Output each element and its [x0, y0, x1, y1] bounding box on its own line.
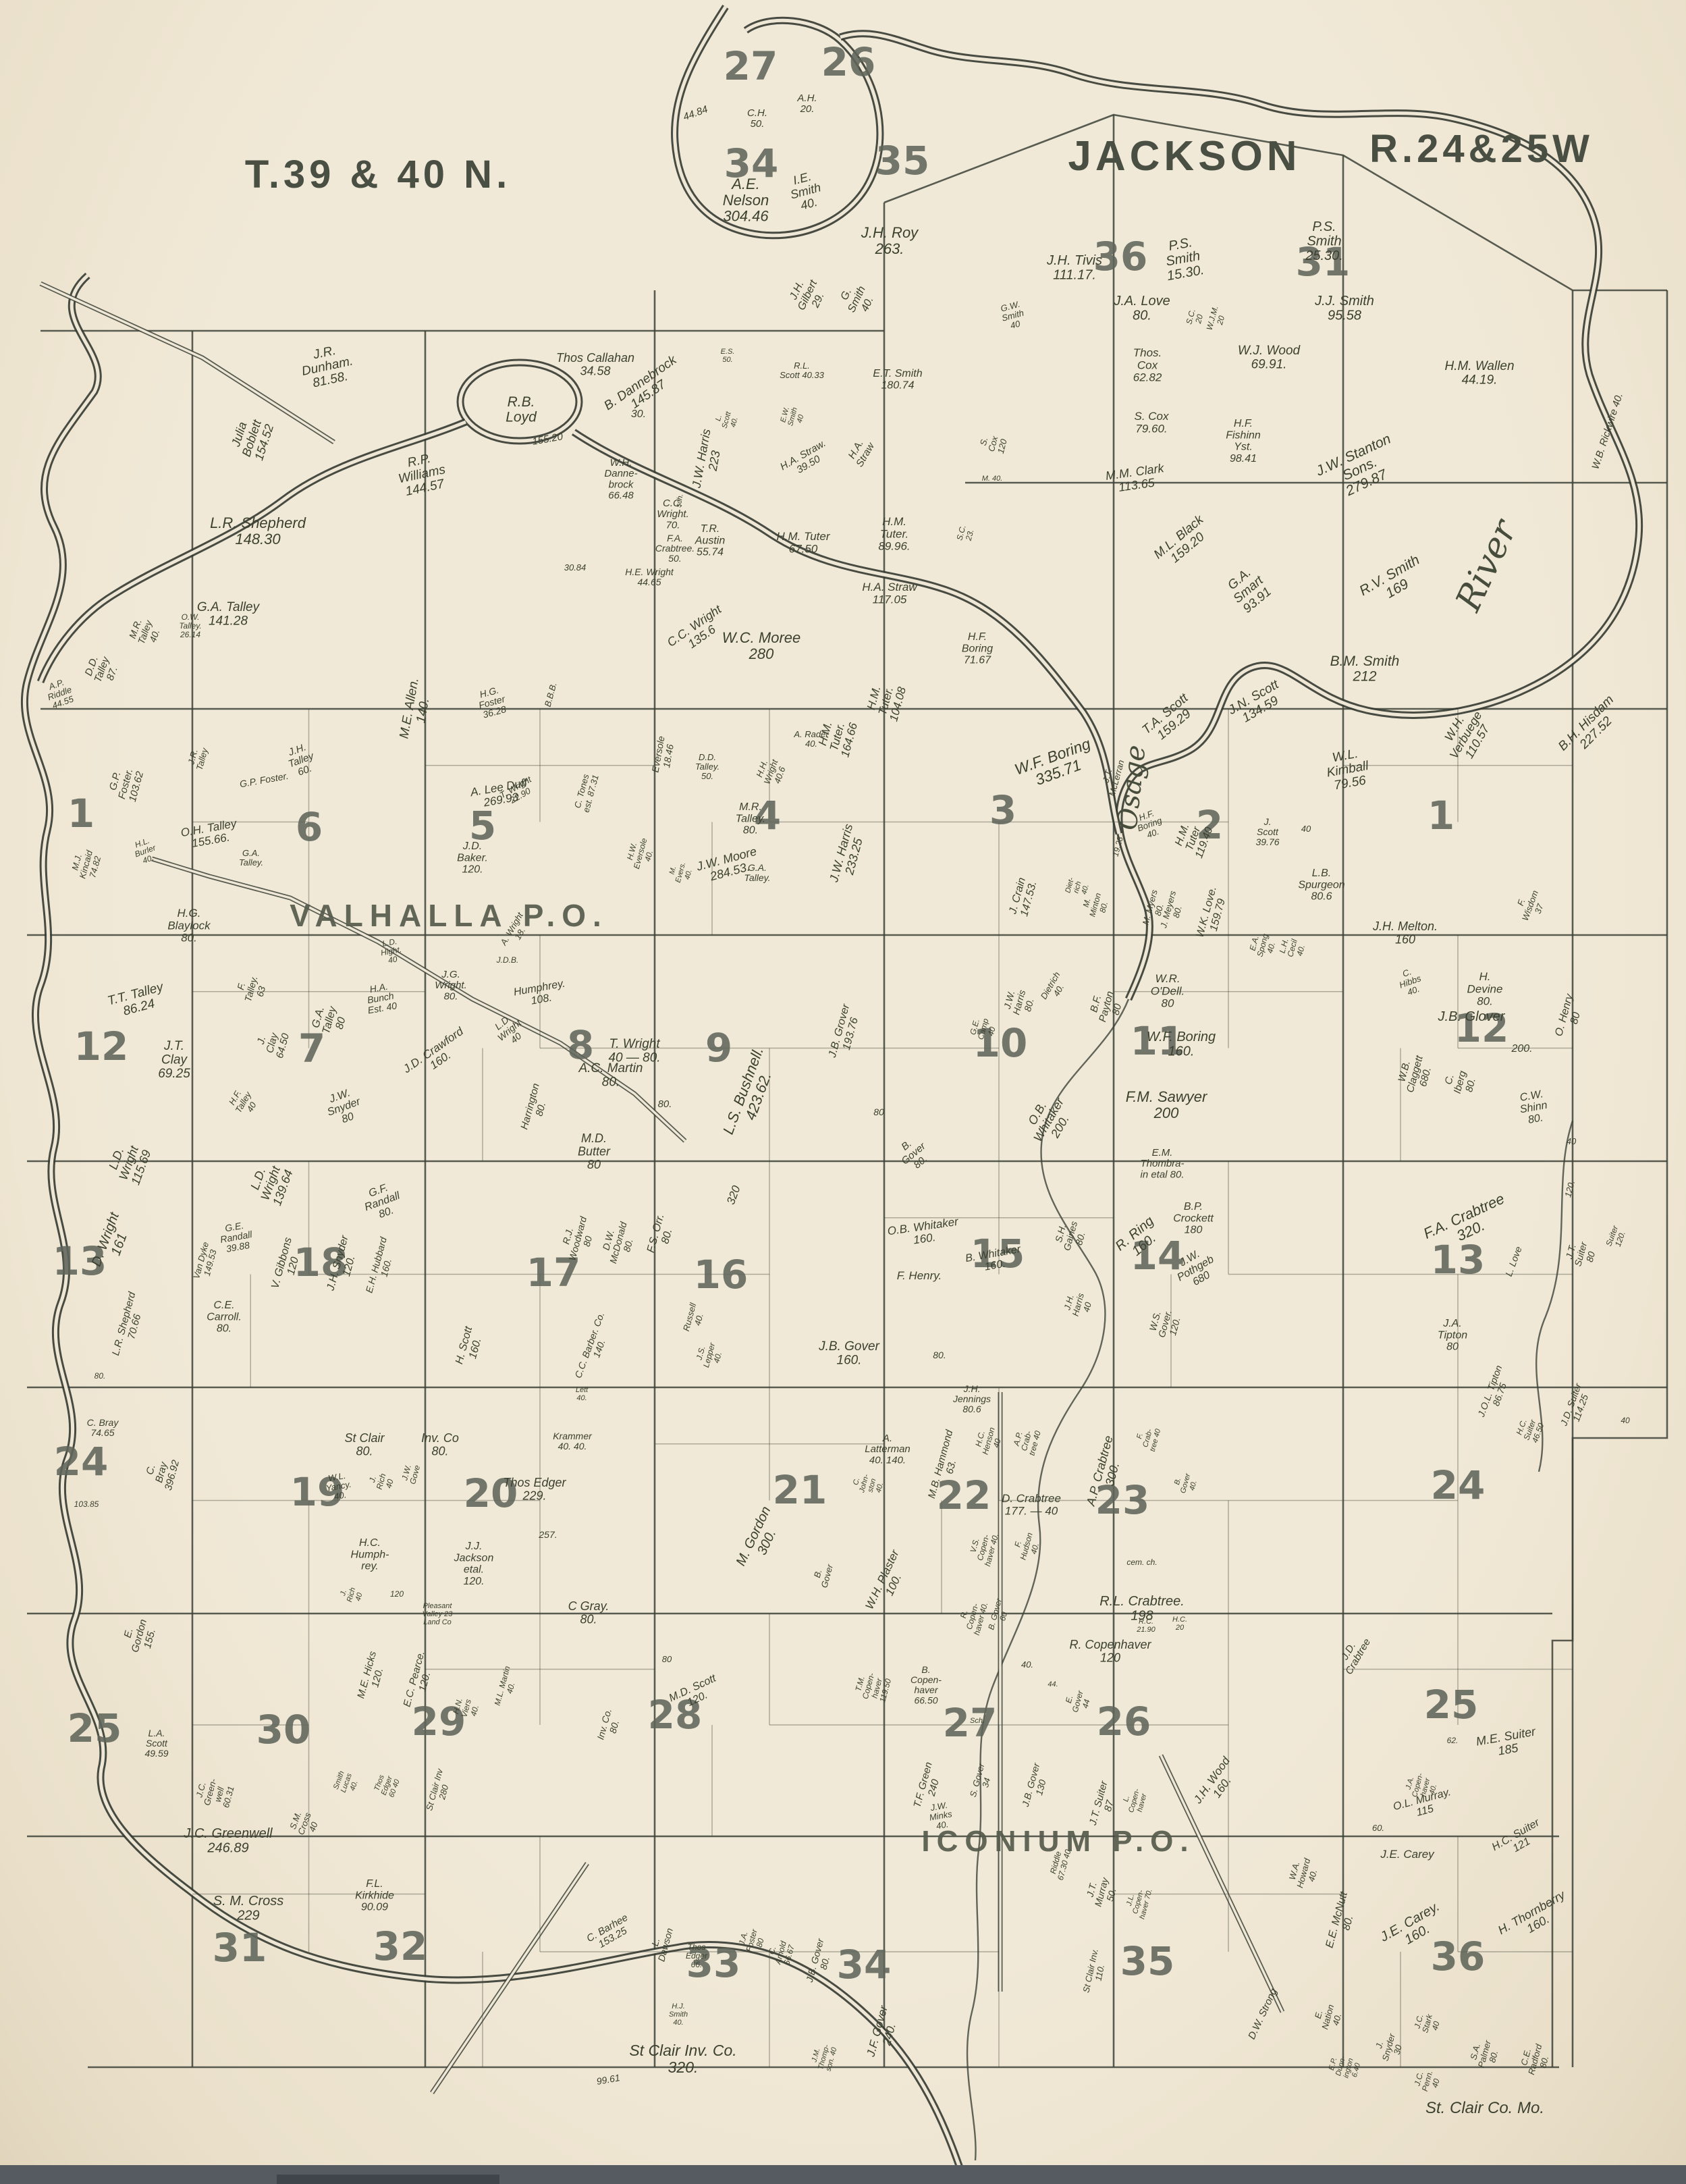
- parcel-label: R.Copen-haver 40.: [955, 1597, 990, 1636]
- parcel-label: SmithLucas40.: [332, 1769, 362, 1796]
- parcel-label: J.A. Love80.: [1113, 294, 1170, 323]
- parcel-label: G.W.Smith40: [998, 298, 1027, 332]
- parcel-label: St Clair Inv280: [424, 1767, 454, 1814]
- parcel-label: W.F. Boring335.71: [1012, 735, 1099, 794]
- parcel-label: E.S.50.: [721, 348, 735, 364]
- range-title: R.24&25W: [1369, 127, 1594, 171]
- parcel-label: H. Scott160.: [454, 1325, 486, 1368]
- parcel-label: J.C.Green-well60.31: [192, 1775, 237, 1812]
- section-number: 32: [373, 1923, 428, 1969]
- parcel-label: T.T. Talley86.24: [106, 980, 169, 1021]
- parcel-label: L.D.Wright139.64: [246, 1159, 296, 1208]
- parcel-label: A.H.20.: [796, 92, 817, 115]
- parcel-label: M. 40.: [982, 475, 1003, 483]
- parcel-label: C.Iberg80.: [1441, 1066, 1479, 1097]
- parcel-label: M. Gordon300.: [734, 1504, 787, 1574]
- parcel-label: C. Bray74.65: [87, 1417, 119, 1438]
- parcel-label: C.John-ston40.: [850, 1471, 886, 1498]
- section-number: 6: [296, 804, 323, 850]
- parcel-label: F.Talley.63: [232, 972, 269, 1006]
- parcel-label: M.E. Allen.140.: [397, 676, 435, 742]
- parcel-label: H.M. Wallen44.19.: [1444, 359, 1514, 388]
- parcel-label: St Clair Inv. Co.320.: [629, 2042, 736, 2076]
- parcel-label: W.K. Love.159.79: [1194, 885, 1230, 942]
- parcel-label: L. Love: [1503, 1245, 1524, 1278]
- parcel-label: G.Smith40.: [836, 279, 879, 319]
- parcel-label: H.F.Talley40: [225, 1084, 262, 1119]
- parcel-label: H.J.Smith40.: [669, 2002, 688, 2027]
- parcel-label: J.J.Jacksonetal.120.: [454, 1541, 494, 1587]
- parcel-label: L.B.Spurgeon80.6: [1298, 868, 1344, 903]
- parcel-label: L.A.Scott49.59: [144, 1728, 168, 1759]
- parcel-label: 30.: [631, 408, 646, 420]
- section-number: 9: [705, 1025, 732, 1071]
- section-number: 35: [1120, 1938, 1175, 1984]
- parcel-label: O.H. Talley155.66.: [180, 817, 240, 852]
- parcel-label: W.L.Kimball79.56: [1324, 745, 1373, 794]
- scan-edge-artifact: [0, 2165, 1686, 2184]
- parcel-label: T.M.Copen-haver119.50: [852, 1670, 893, 1705]
- parcel-label: M.L. Martin40.: [493, 1665, 521, 1709]
- parcel-label: D.D.Talley.50.: [695, 752, 719, 781]
- parcel-label: J.F. Gover240.: [864, 2004, 902, 2062]
- section-number: 24: [54, 1439, 109, 1485]
- parcel-label: J.D.B.: [496, 955, 519, 965]
- parcel-label: H.H.Wright40.6: [753, 754, 789, 789]
- section-number: 31: [213, 1925, 267, 1971]
- parcel-label: M.E. Hicks120.: [355, 1650, 389, 1703]
- parcel-label: J.Rich40: [337, 1584, 364, 1605]
- parcel-label: O.B.Whitaker200.: [1019, 1088, 1078, 1150]
- parcel-label: E.M.Thombra-in etal 80.: [1140, 1147, 1184, 1180]
- parcel-label: J.C.Stark40: [1412, 2010, 1443, 2036]
- parcel-label: H.M.Tuter.164.66: [815, 714, 860, 758]
- parcel-label: C.E.Radford80.: [1517, 2040, 1553, 2079]
- parcel-label: C.E.Carroll.80.: [207, 1300, 242, 1335]
- parcel-label: J.C. Greenwell246.89: [183, 1826, 273, 1856]
- parcel-label: H.A.BunchEst. 40: [363, 980, 398, 1015]
- parcel-label: H.C. Suiter121: [1490, 1817, 1548, 1863]
- section-number: 36: [1431, 1934, 1486, 1979]
- parcel-label: H.G.Foster36.28: [474, 683, 510, 720]
- parcel-label: J.Scott39.76: [1255, 816, 1279, 847]
- parcel-label: Inv. Co.80.: [595, 1707, 623, 1744]
- parcel-label: 40: [1567, 1136, 1577, 1146]
- parcel-label: B.M. Smith212: [1330, 654, 1400, 685]
- parcel-labels: 44.84C.H.50.A.H.20.A.E.Nelson304.46I.E.S…: [43, 92, 1630, 2095]
- parcel-label: H.M.Tuter.89.96.: [878, 515, 910, 553]
- parcel-label: M.R.Talley40.: [126, 615, 164, 649]
- parcel-label: J. Crain147.53.: [1007, 876, 1039, 919]
- parcel-label: H.E. Wright44.65: [625, 566, 674, 587]
- parcel-label: B.F.Payton80: [1086, 987, 1126, 1026]
- parcel-label: B.B.B.: [543, 681, 559, 708]
- parcel-label: T.R.Austin55.74: [695, 523, 726, 558]
- parcel-label: L.R. Shepherd70.66: [110, 1290, 148, 1360]
- parcel-label: J.Rich40: [366, 1470, 396, 1493]
- section-number: 21: [773, 1467, 827, 1513]
- parcel-label: G.P. Foster.: [239, 770, 290, 789]
- section-number: 25: [67, 1705, 122, 1751]
- parcel-label: A.P.Crab-tree 40: [1010, 1425, 1043, 1457]
- parcel-label: E.H. Hubbard160.: [363, 1235, 398, 1297]
- parcel-label: L.D.Hight.40: [379, 936, 404, 966]
- parcel-label: J.H. Roy263.: [861, 224, 919, 257]
- parcel-label: St Clair Inv.110.: [1081, 1948, 1109, 1996]
- parcel-label: B.H. Hisdam227.52: [1556, 693, 1627, 764]
- parcel-label: 99.61: [595, 2072, 620, 2087]
- parcel-label: F.S. Orr.80.: [645, 1213, 678, 1257]
- section-number: 12: [74, 1023, 129, 1069]
- parcel-label: E.T. Smith180.74: [873, 368, 922, 391]
- parcel-label: S.Cox120: [977, 432, 1009, 455]
- county-label: St. Clair Co. Mo.: [1425, 2099, 1544, 2117]
- parcel-label: F.M. Sawyer200: [1126, 1088, 1208, 1121]
- parcel-label: W.S.Gover.120.: [1146, 1306, 1183, 1341]
- parcel-label: L.Dawson: [646, 1924, 675, 1963]
- parcel-label: J.D. Suiter114.25: [1558, 1381, 1593, 1431]
- parcel-label: 60.: [1372, 1823, 1384, 1833]
- parcel-label: J.T.Suiter80: [1562, 1237, 1599, 1271]
- parcel-label: C Gray.80.: [568, 1599, 609, 1626]
- section-number: 35: [875, 138, 930, 184]
- parcel-label: J.M.Thomp-son. 40: [809, 2042, 838, 2073]
- section-number: 16: [694, 1252, 749, 1298]
- parcel-label: J.H.Gilbert29.: [785, 273, 830, 317]
- parcel-label: W.B. Rickwire 40.: [1589, 392, 1625, 471]
- parcel-label: O. Henry80: [1553, 992, 1587, 1041]
- parcel-label: L.Copen-haver: [1120, 1786, 1149, 1815]
- parcel-label: R. Copenhaver120: [1069, 1638, 1151, 1664]
- parcel-label: J.T. Suiter87: [1087, 1779, 1121, 1830]
- parcel-label: D.W.McDonald80.: [597, 1217, 638, 1267]
- parcel-label: C. Tonesest. 87.31: [572, 771, 601, 814]
- section-number: 3: [989, 787, 1016, 833]
- parcel-label: C. Barhee153.25: [584, 1912, 635, 1954]
- parcel-label: J.R.Dunham.81.58.: [298, 340, 357, 392]
- parcel-label: H.A. Straw117.05: [862, 581, 918, 606]
- parcel-label: J.L.Copen-haver 70.: [1122, 1884, 1153, 1921]
- parcel-label: J.H. Melton.160: [1372, 920, 1438, 946]
- parcel-label: J.W.Harris80.: [1001, 986, 1037, 1019]
- parcel-label: J.B. Grover193.76: [827, 1003, 863, 1063]
- map-title: JACKSON: [1068, 133, 1301, 180]
- parcel-label: J.H. Tivis111.17.: [1046, 253, 1102, 283]
- parcel-label: 80: [662, 1654, 672, 1664]
- parcel-label: PleasantValley 23Land Co: [423, 1602, 454, 1626]
- parcel-label: 320: [724, 1183, 743, 1206]
- parcel-label: L.D.Wright115.69: [104, 1139, 154, 1187]
- section-number: 26: [821, 39, 876, 85]
- parcel-label: H.C.Humph-rey.: [351, 1537, 389, 1572]
- parcel-label: F.L.Kirkhide90.09: [355, 1878, 394, 1913]
- parcel-label: I.E.Smith40.: [786, 168, 826, 215]
- parcel-label: Eversole18.46: [649, 735, 676, 775]
- parcel-label: J.R.Talley: [185, 743, 210, 771]
- parcel-label: J.B. Gover130: [1020, 1761, 1052, 1811]
- parcel-label: C.C.Wright.70.: [657, 498, 689, 531]
- parcel-label: H.C.20: [1172, 1616, 1187, 1632]
- parcel-label: J.H.Talley60.: [283, 740, 320, 780]
- parcel-label: Krammer40. 40.: [553, 1431, 593, 1451]
- parcel-label: 44.84: [682, 103, 709, 123]
- parcel-label: 155.20: [531, 431, 564, 448]
- parcel-label: Dietrich40.: [1039, 970, 1070, 1006]
- parcel-label: S.M.Cross40: [287, 1807, 322, 1839]
- parcel-label: M.L. Black159.20: [1151, 512, 1216, 572]
- plat-map-svg: 2726343536311654321127891011121318171615…: [0, 0, 1686, 2184]
- parcel-label: E.W.Smith40: [779, 404, 807, 429]
- post-office-label: VALHALLA P.O.: [290, 898, 608, 933]
- parcel-label: J.W. StantonSons.279.87: [1313, 431, 1406, 507]
- parcel-label: J.O.L. Tipton86.75: [1475, 1364, 1514, 1422]
- parcel-label: 103.85: [74, 1499, 99, 1509]
- township-title: T.39 & 40 N.: [245, 153, 511, 196]
- parcel-label: A.P.Riddle44.55: [43, 675, 76, 711]
- parcel-label: R.C.21.90: [1136, 1618, 1155, 1634]
- section-number: 27: [724, 43, 778, 89]
- parcel-label: E.P.Dunn-ington6.40: [1326, 2053, 1363, 2081]
- parcel-label: J.T.Clay69.25: [158, 1039, 190, 1081]
- parcel-label: D.D.Talley87.: [82, 651, 122, 688]
- section-number: 1: [67, 791, 94, 836]
- parcel-label: 44.: [1048, 1680, 1058, 1688]
- parcel-label: E.Gover44: [1062, 1686, 1093, 1715]
- parcel-label: R.P.Williams144.57: [394, 449, 450, 500]
- parcel-label: M.Evers.40.: [666, 859, 695, 886]
- parcel-label: J.W.Snyder80: [322, 1085, 366, 1129]
- parcel-label: Thos.Cox62.82: [1133, 346, 1162, 384]
- parcel-label: S. Gover34: [968, 1761, 996, 1801]
- parcel-label: ThosEdger60 40: [373, 1772, 402, 1799]
- parcel-label: Thos Callahan34.58: [556, 351, 634, 377]
- section-number: 26: [1097, 1699, 1151, 1744]
- parcel-label: H.A.Straw: [844, 435, 877, 469]
- parcel-label: V.S.Copen-haver 40.: [966, 1528, 1001, 1568]
- parcel-label: B.Copen-haver66.50: [910, 1664, 942, 1705]
- section-number: 13: [1431, 1237, 1486, 1283]
- parcel-label: O.W.Talley.26.14: [179, 612, 201, 639]
- parcel-label: J.H.Harris40: [1061, 1289, 1095, 1320]
- parcel-label: C.H.50.: [747, 107, 767, 130]
- parcel-label: J.A.Tipton80: [1438, 1318, 1467, 1353]
- parcel-label: H.G.Blaylock80.: [167, 907, 211, 944]
- parcel-label: 30.84: [564, 562, 587, 572]
- parcel-label: G.A.Smart93.91: [1222, 562, 1275, 617]
- parcel-label: T.A. Scott159.29: [1139, 691, 1200, 748]
- parcel-label: 80: [873, 1107, 884, 1117]
- parcel-label: JuliaBoblett154.52: [227, 413, 277, 462]
- post-office-label: ICONIUM P.O.: [921, 1825, 1195, 1858]
- scan-edge-artifact-dark: [277, 2175, 499, 2184]
- parcel-label: R.V. Smith169: [1357, 552, 1430, 612]
- parcel-label: M.D.Butter80: [578, 1131, 611, 1171]
- parcel-label: C.Hibbs40.: [1394, 964, 1425, 999]
- parcel-label: 40: [1621, 1416, 1630, 1425]
- parcel-label: M.E. Suiter185: [1475, 1724, 1540, 1761]
- parcel-label: G.P.Foster.103.62: [105, 764, 146, 803]
- section-number: 24: [1431, 1462, 1486, 1508]
- parcel-label: W.J. Wood69.91.: [1238, 344, 1301, 372]
- section-number: 25: [1424, 1682, 1479, 1728]
- parcel-label: 80.: [933, 1350, 946, 1360]
- parcel-label: E.Gordon155.: [119, 1615, 160, 1656]
- parcel-label: cem. ch.: [1126, 1557, 1157, 1567]
- parcel-label: J.T.Murray50.: [1083, 1873, 1120, 1911]
- parcel-label: J.W. Harris223: [689, 428, 726, 492]
- parcel-label: 80.: [658, 1098, 672, 1110]
- parcel-label: S.H.Gaines80.: [1052, 1217, 1089, 1254]
- parcel-label: F. Henry.: [897, 1269, 942, 1282]
- parcel-label: H.A. Straw.39.50: [778, 437, 834, 482]
- parcel-label: F.Wisdom37: [1511, 886, 1550, 926]
- parcel-label: J.C.Penn.40: [1411, 2067, 1443, 2095]
- parcel-label: R.B.Loyd: [506, 394, 537, 425]
- parcel-label: J.W. Harris233.25: [827, 822, 868, 887]
- parcel-label: J.W.Gove: [400, 1462, 423, 1485]
- parcel-label: J.Clay64.50: [253, 1026, 292, 1060]
- parcel-label: W.J.M.20: [1205, 304, 1229, 334]
- parcel-label: B.Gover80.: [892, 1131, 935, 1175]
- parcel-label: C.C. Barber. Co.140.: [572, 1310, 616, 1383]
- parcel-label: Russell40.: [681, 1301, 707, 1335]
- parcel-label: G.A. Talley141.28: [197, 600, 261, 629]
- parcel-label: J.D. Crawford160.: [400, 1025, 473, 1086]
- parcel-label: W.A.Howard40.: [1286, 1855, 1322, 1892]
- parcel-label: H.M.Tuter.104.08: [863, 678, 908, 722]
- parcel-label: H.M. Tuter67.50: [776, 530, 830, 555]
- parcel-label: W.R.O'Dell.80: [1151, 972, 1185, 1010]
- parcel-label: B.P.Crockett180: [1173, 1201, 1214, 1236]
- parcel-label: 120: [390, 1589, 404, 1599]
- parcel-label: J.B. Glover: [1438, 1009, 1506, 1024]
- parcel-label: J.D.Crabtree: [1334, 1631, 1373, 1676]
- parcel-label: P.S.Smith15.30.: [1161, 234, 1205, 284]
- parcel-label: Harrington80.: [518, 1082, 552, 1134]
- parcel-label: J.J. Smith95.58: [1314, 294, 1374, 323]
- parcel-label: C.Bray396.92: [142, 1453, 182, 1492]
- parcel-label: Van Dyke149.53: [191, 1241, 220, 1283]
- parcel-label: F.A.Crabtree.50.: [655, 533, 695, 564]
- parcel-label: O.B. Whitaker160.: [887, 1215, 962, 1250]
- parcel-label: G.E.Randall39.88: [217, 1219, 255, 1255]
- parcel-label: J.G.Wright.80.: [435, 969, 467, 1002]
- parcel-label: B.Gover40.: [1171, 1470, 1200, 1496]
- parcel-label: M.J.Kincaid74.82: [68, 847, 104, 882]
- parcel-label: 40: [1301, 824, 1311, 834]
- parcel-label: H.Devine80.: [1467, 970, 1503, 1008]
- parcel-label: Humphrey.108.: [513, 978, 568, 1010]
- parcel-label: S.C.20: [1184, 308, 1205, 328]
- parcel-label: 120.: [1562, 1179, 1577, 1198]
- parcel-label: Suiter120.: [1604, 1224, 1628, 1251]
- parcel-label: F.Hudson40.: [1010, 1529, 1043, 1564]
- parcel-label: L.R. Shepherd148.30: [210, 514, 306, 548]
- section-number: 34: [837, 1942, 892, 1988]
- parcel-label: E.Nation40.: [1311, 2001, 1345, 2033]
- parcel-label: J.S.Lepper40.: [693, 1339, 726, 1370]
- parcel-label: F.Crab-tree 40: [1133, 1423, 1163, 1452]
- parcel-label: H. Thornberry160.: [1496, 1888, 1575, 1948]
- parcel-label: Inv. Co80.: [421, 1431, 459, 1458]
- parcel-label: S. Cox79.60.: [1134, 410, 1169, 435]
- parcel-label: H.W.Eversole40.: [623, 834, 657, 872]
- parcel-label: D.W. Strong: [1246, 1986, 1280, 2041]
- section-number: 22: [937, 1472, 991, 1518]
- parcel-label: J.E. Carey: [1380, 1848, 1435, 1861]
- parcel-label: P.S.Smith25.30.: [1305, 219, 1343, 263]
- parcel-label: H.F.FishinnYst.98.41: [1226, 418, 1261, 464]
- section-number: 1: [1427, 793, 1454, 838]
- parcel-label: J.B. Gover160.: [818, 1339, 879, 1368]
- parcel-label: S.A.Palmer80.: [1467, 2036, 1502, 2071]
- parcel-label: R.L.Scott 40.33: [780, 361, 825, 380]
- parcel-label: D. Crabtree177. — 40: [1002, 1492, 1061, 1517]
- parcel-label: 62.: [1447, 1736, 1459, 1745]
- parcel-label: 80.: [94, 1371, 106, 1381]
- creek: [967, 999, 1128, 2160]
- parcel-label: L.Scott40.: [713, 408, 740, 431]
- parcel-label: J.H. Wood160.: [1191, 1754, 1243, 1813]
- parcel-label: H.F.Boring71.67: [962, 631, 993, 666]
- parcel-label: 200.: [1511, 1043, 1532, 1055]
- parcel-label: 257.: [538, 1529, 557, 1540]
- parcel-label: L.H.Cecil40.: [1277, 936, 1308, 960]
- parcel-label: St Clair80.: [344, 1431, 385, 1458]
- river-name-label: River: [1448, 512, 1526, 618]
- parcel-label: G.F.Randall80.: [359, 1179, 406, 1224]
- parcel-label: S.C.23.: [954, 524, 976, 544]
- parcel-label: Sch.: [970, 1717, 985, 1725]
- parcel-label: Diet-rich40.: [1064, 876, 1091, 898]
- parcel-label: B.Gover: [810, 1560, 835, 1589]
- parcel-label: G.A.Talley.: [239, 848, 263, 868]
- parcel-label: A.Latterman40. 140.: [865, 1433, 910, 1466]
- plat-map-page: 2726343536311654321127891011121318171615…: [0, 0, 1686, 2184]
- parcel-label: W.H. Plaster100.: [863, 1547, 913, 1617]
- parcel-label: C.W.Shinn80.: [1517, 1088, 1550, 1127]
- parcel-label: J. Meyers80.: [1158, 889, 1187, 932]
- parcel-label: Lett40.: [576, 1386, 589, 1402]
- parcel-label: 40.: [1021, 1659, 1033, 1670]
- section-number: 30: [256, 1707, 311, 1753]
- parcel-label: A.C. Martin80.: [578, 1061, 643, 1090]
- parcel-label: W.C. Moree280: [722, 629, 801, 662]
